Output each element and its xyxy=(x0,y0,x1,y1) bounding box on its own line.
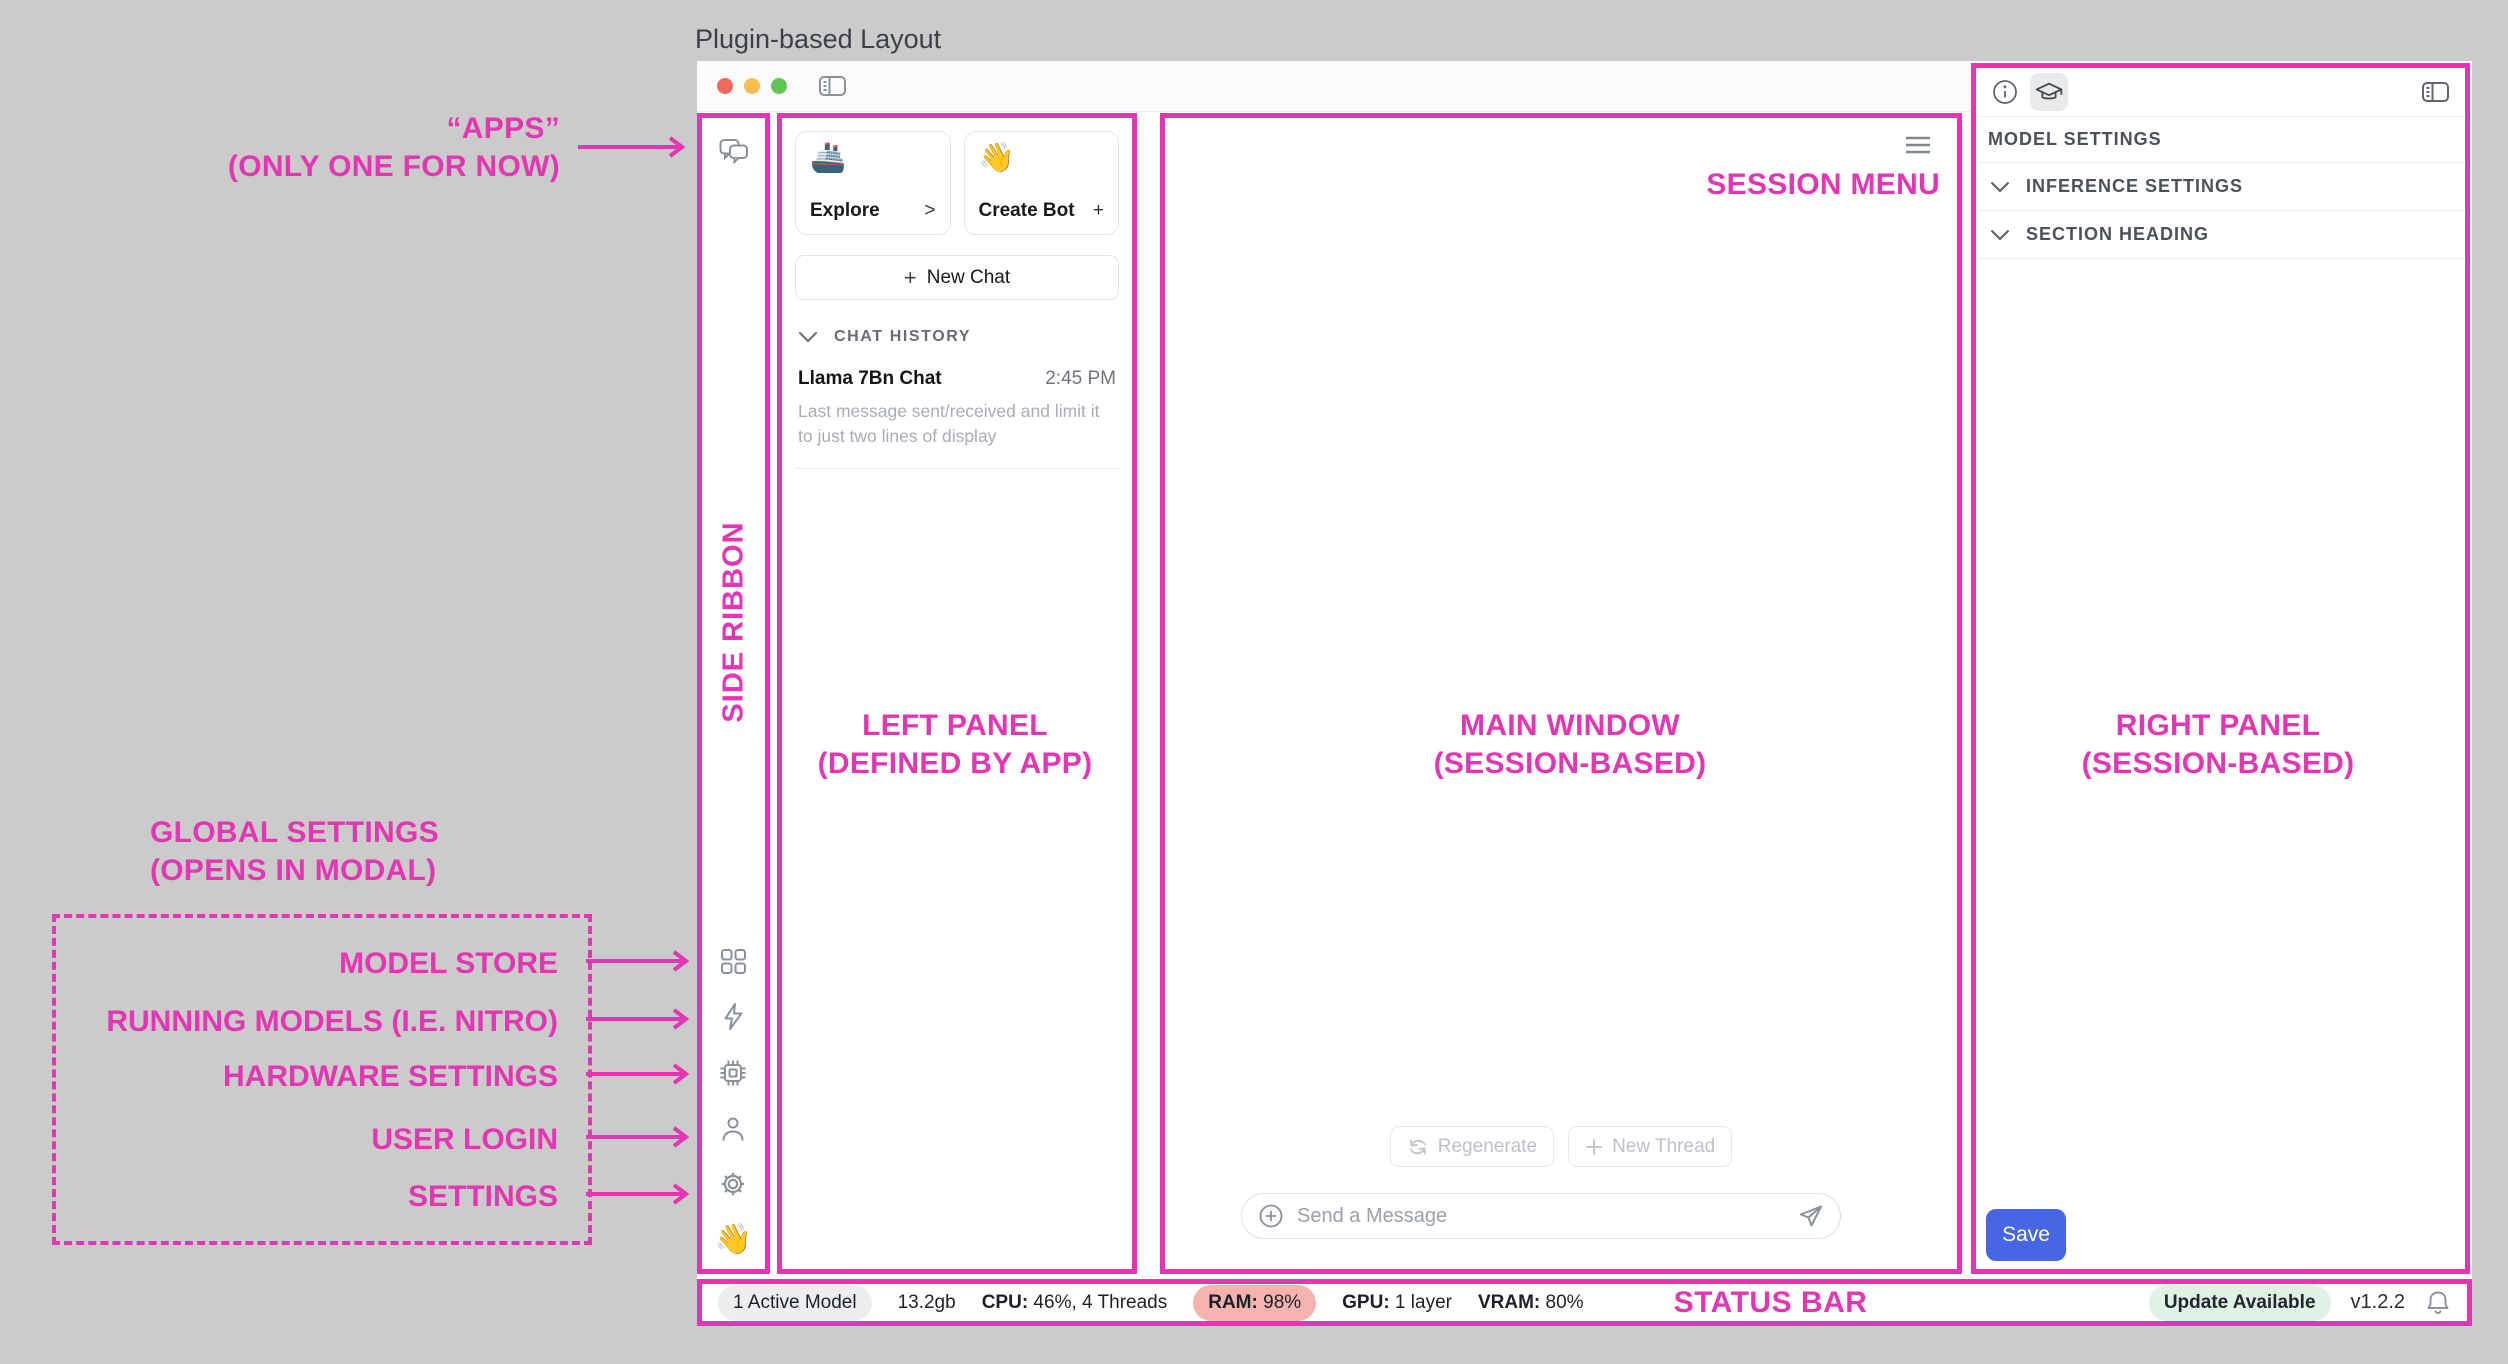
close-button[interactable] xyxy=(717,78,733,94)
user-login-icon[interactable] xyxy=(720,1115,746,1143)
arrow-user-login xyxy=(586,1125,694,1149)
arrow-hardware-settings xyxy=(586,1062,694,1086)
running-models-icon[interactable] xyxy=(721,1002,746,1031)
plus-icon xyxy=(1585,1138,1603,1156)
create-bot-card[interactable]: 👋 Create Bot + xyxy=(964,131,1120,235)
chevron-down-icon xyxy=(1990,181,2010,193)
annotation-global-settings: GLOBAL SETTINGS (OPENS IN MODAL) xyxy=(150,814,439,890)
chat-preview: Last message sent/received and limit it … xyxy=(798,399,1116,450)
sidebar-toggle-icon[interactable] xyxy=(818,74,848,98)
annotation-running-models: RUNNING MODELS (I.E. NITRO) xyxy=(106,1005,558,1039)
model-settings-heading: MODEL SETTINGS xyxy=(1976,117,2465,163)
refresh-icon xyxy=(1407,1136,1429,1158)
message-input[interactable] xyxy=(1297,1205,1797,1228)
section-heading-label: SECTION HEADING xyxy=(2026,224,2209,245)
inference-settings-label: INFERENCE SETTINGS xyxy=(2026,176,2243,197)
create-bot-card-label: Create Bot xyxy=(979,200,1075,222)
chevron-down-icon[interactable] xyxy=(798,331,818,343)
annotation-main-window: MAIN WINDOW (SESSION-BASED) xyxy=(1320,707,1820,783)
sidebar-toggle-icon[interactable] xyxy=(2421,80,2451,104)
global-settings-group-box: MODEL STORE RUNNING MODELS (I.E. NITRO) … xyxy=(52,914,592,1245)
new-thread-label: New Thread xyxy=(1612,1136,1715,1158)
model-size-label: 13.2gb xyxy=(898,1292,956,1314)
annotation-status-bar: STATUS BAR xyxy=(1674,1286,1868,1320)
version-label: v1.2.2 xyxy=(2351,1291,2405,1314)
inference-settings-section[interactable]: INFERENCE SETTINGS xyxy=(1976,163,2465,211)
wave-emoji-icon[interactable]: 👋 xyxy=(715,1225,752,1255)
arrow-settings xyxy=(586,1182,694,1206)
notification-bell-icon[interactable] xyxy=(2425,1289,2451,1317)
chat-title: Llama 7Bn Chat xyxy=(798,368,942,390)
gpu-stat: GPU: 1 layer xyxy=(1342,1292,1452,1314)
annotation-apps: “APPS” (ONLY ONE FOR NOW) xyxy=(228,110,560,186)
update-available-badge[interactable]: Update Available xyxy=(2149,1285,2331,1321)
design-canvas: Plugin-based Layout “APPS” (ONLY ONE FOR… xyxy=(0,0,2508,1364)
annotation-left-panel: LEFT PANEL (DEFINED BY APP) xyxy=(705,707,1205,783)
annotation-user-login: USER LOGIN xyxy=(371,1123,558,1157)
app-window: SIDE RIBBON xyxy=(697,61,2472,1326)
chat-timestamp: 2:45 PM xyxy=(1045,368,1116,390)
graduation-cap-icon xyxy=(2034,80,2064,105)
chevron-down-icon xyxy=(1990,229,2010,241)
save-button[interactable]: Save xyxy=(1986,1209,2066,1261)
zoom-button[interactable] xyxy=(771,78,787,94)
plus-icon: + xyxy=(1093,200,1104,222)
chat-list-item[interactable]: Llama 7Bn Chat 2:45 PM Last message sent… xyxy=(795,368,1119,469)
active-model-badge: 1 Active Model xyxy=(718,1285,872,1321)
explore-card-label: Explore xyxy=(810,200,880,222)
send-icon[interactable] xyxy=(1797,1202,1825,1230)
session-menu-icon[interactable] xyxy=(1903,134,1933,156)
right-panel: MODEL SETTINGS INFERENCE SETTINGS SECTIO… xyxy=(1971,63,2470,1274)
annotation-model-store: MODEL STORE xyxy=(339,947,558,981)
model-settings-tab[interactable] xyxy=(2030,73,2068,111)
chat-history-label: CHAT HISTORY xyxy=(834,328,971,346)
annotation-settings: SETTINGS xyxy=(408,1180,558,1214)
status-bar: 1 Active Model 13.2gb CPU: 46%, 4 Thread… xyxy=(697,1279,2472,1326)
regenerate-button[interactable]: Regenerate xyxy=(1390,1126,1554,1167)
arrow-running-models xyxy=(586,1007,694,1031)
settings-gear-icon[interactable] xyxy=(719,1170,747,1198)
ram-stat-badge: RAM: 98% xyxy=(1193,1285,1316,1321)
new-thread-button[interactable]: New Thread xyxy=(1568,1126,1732,1167)
explore-card[interactable]: 🚢 Explore > xyxy=(795,131,951,235)
arrow-apps xyxy=(578,135,690,159)
annotation-hardware-settings: HARDWARE SETTINGS xyxy=(223,1060,558,1094)
ship-emoji-icon: 🚢 xyxy=(810,144,936,173)
main-window: Regenerate New Thread xyxy=(1160,113,1962,1274)
annotation-right-panel: RIGHT PANEL (SESSION-BASED) xyxy=(1968,707,2468,783)
right-panel-header xyxy=(1976,68,2465,117)
page-title: Plugin-based Layout xyxy=(695,24,941,55)
hardware-settings-icon[interactable] xyxy=(718,1058,748,1088)
section-heading-section[interactable]: SECTION HEADING xyxy=(1976,211,2465,259)
chat-history-header[interactable]: CHAT HISTORY xyxy=(795,328,1119,346)
annotation-side-ribbon: SIDE RIBBON xyxy=(717,521,750,722)
chevron-right-icon: > xyxy=(924,200,935,222)
attach-plus-circle-icon[interactable] xyxy=(1257,1202,1285,1230)
vram-stat: VRAM: 80% xyxy=(1478,1292,1584,1314)
chat-app-icon[interactable] xyxy=(718,136,750,166)
new-chat-label: New Chat xyxy=(927,267,1010,289)
cpu-stat: CPU: 46%, 4 Threads xyxy=(982,1292,1168,1314)
arrow-model-store xyxy=(586,949,694,973)
new-chat-button[interactable]: + New Chat xyxy=(795,255,1119,300)
annotation-session-menu: SESSION MENU xyxy=(1706,166,1940,204)
info-icon[interactable] xyxy=(1990,77,2020,107)
regenerate-label: Regenerate xyxy=(1438,1136,1537,1158)
side-ribbon: SIDE RIBBON xyxy=(697,113,770,1274)
plus-icon: + xyxy=(904,265,917,291)
model-store-icon[interactable] xyxy=(720,948,747,975)
left-panel: 🚢 Explore > 👋 Create Bot + + New Chat xyxy=(777,113,1137,1274)
minimize-button[interactable] xyxy=(744,78,760,94)
wave-emoji-icon: 👋 xyxy=(979,144,1105,173)
message-composer[interactable] xyxy=(1241,1193,1841,1239)
window-titlebar xyxy=(697,61,1971,112)
